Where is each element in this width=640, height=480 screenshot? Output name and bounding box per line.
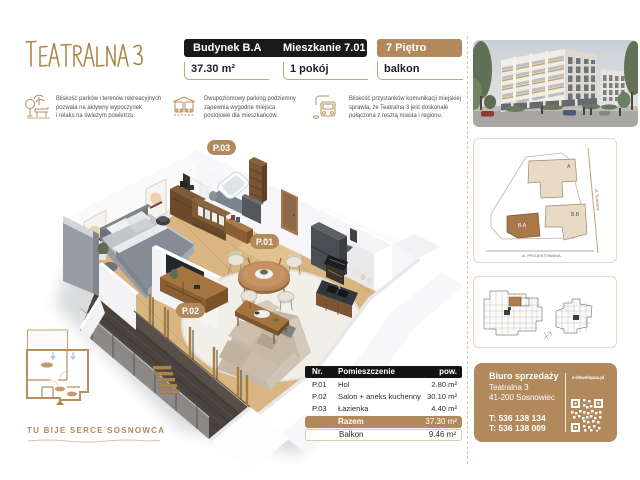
svg-text:P.03: P.03 (213, 143, 230, 153)
svg-text:P.01: P.01 (256, 237, 273, 247)
svg-text:ul. Teatralna: ul. Teatralna (594, 189, 601, 212)
svg-text:B.B: B.B (571, 212, 580, 218)
svg-text:B.A: B.A (518, 223, 527, 229)
svg-text:P.02: P.02 (182, 306, 199, 316)
svg-text:ul. PROJEKTOWANA: ul. PROJEKTOWANA (522, 253, 561, 258)
